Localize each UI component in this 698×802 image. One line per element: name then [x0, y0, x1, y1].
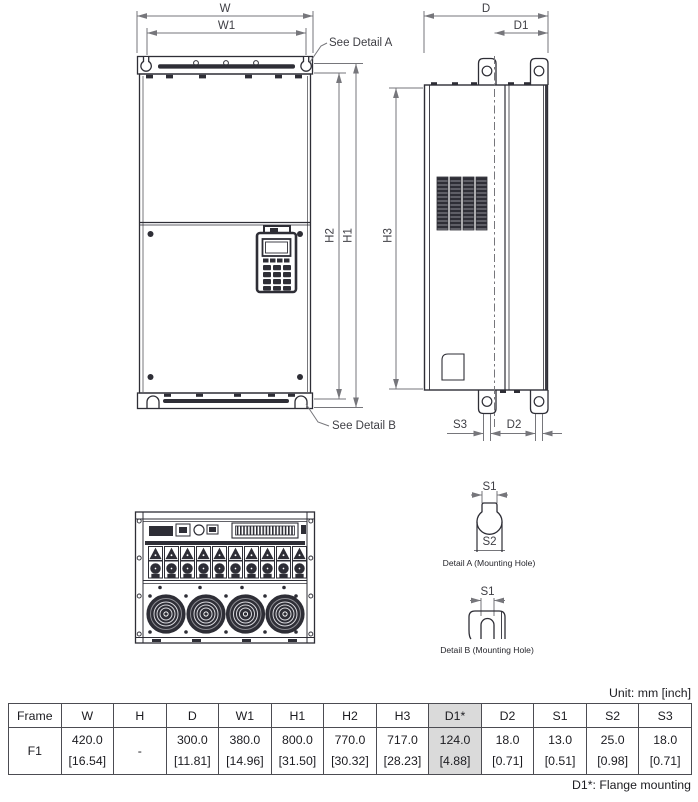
column-header: H2: [324, 704, 377, 728]
value-cell: 717.0[28.23]: [376, 728, 429, 775]
value-cell: 380.0[14.96]: [219, 728, 272, 775]
value-cell: 18.0[0.71]: [481, 728, 534, 775]
notch-slot-shape: [481, 619, 494, 640]
terminal-rail: [145, 541, 305, 545]
value-cell: 13.0[0.51]: [534, 728, 587, 775]
frame-cell: F1: [9, 728, 62, 775]
technical-drawing: [0, 0, 698, 686]
dim-label-h3: H3: [383, 218, 396, 254]
detail-b-drawing: [469, 598, 505, 639]
cooling-fans: [147, 595, 304, 633]
keyhole-right: [301, 57, 311, 71]
side-body: [425, 85, 548, 390]
bottom-notch-left: [147, 396, 159, 409]
dim-label-s3: S3: [446, 419, 474, 432]
column-header: S2: [586, 704, 639, 728]
keypad: [257, 226, 296, 292]
callout-see-detail-a: See Detail A: [329, 37, 392, 50]
side-view: [425, 56, 549, 427]
control-components: [149, 523, 306, 538]
table-head: FrameWHDW1H1H2H3D1*D2S1S2S3: [9, 704, 692, 728]
dim-label-w1: W1: [147, 20, 306, 33]
dim-label-d2: D2: [500, 419, 528, 432]
value-cell: -: [114, 728, 167, 775]
keyhole-left: [141, 57, 151, 71]
bottom-slot: [163, 399, 289, 403]
keyhole-shape: [477, 503, 502, 534]
table-body: F1420.0[16.54]-300.0[11.81]380.0[14.96]8…: [9, 728, 692, 775]
top-slot: [158, 64, 295, 68]
column-header: H: [114, 704, 167, 728]
dimensions-table: FrameWHDW1H1H2H3D1*D2S1S2S3 F1420.0[16.5…: [8, 703, 692, 775]
dim-label-s1-detail-a: S1: [477, 481, 502, 494]
column-header: W1: [219, 704, 272, 728]
value-cell: 770.0[30.32]: [324, 728, 377, 775]
dim-label-d1: D1: [494, 20, 548, 33]
notch-tab-shape: [469, 611, 505, 639]
value-cell: 18.0[0.71]: [639, 728, 692, 775]
bottom-notch-right: [295, 396, 307, 409]
dim-label-s2-detail-a: S2: [477, 536, 502, 549]
dimensions-table-container: FrameWHDW1H1H2H3D1*D2S1S2S3 F1420.0[16.5…: [8, 703, 692, 775]
value-cell: 800.0[31.50]: [271, 728, 324, 775]
side-top-tabs-marks: [431, 82, 530, 393]
value-cell: 124.0[4.88]: [429, 728, 482, 775]
column-header: H3: [376, 704, 429, 728]
value-cell: 420.0[16.54]: [61, 728, 114, 775]
value-cell: 25.0[0.98]: [586, 728, 639, 775]
value-cell: 300.0[11.81]: [166, 728, 219, 775]
vent-grille: [437, 177, 487, 230]
column-header: S1: [534, 704, 587, 728]
column-header: S3: [639, 704, 692, 728]
column-header: H1: [271, 704, 324, 728]
dim-label-h2: H2: [325, 218, 338, 254]
dim-label-h1: H1: [343, 218, 356, 254]
callout-see-detail-b: See Detail B: [332, 420, 396, 433]
column-header: D2: [481, 704, 534, 728]
terminal-strip: [149, 547, 307, 579]
side-cutout: [442, 354, 464, 380]
detail-b-caption: Detail B (Mounting Hole): [417, 645, 557, 655]
table-footnote: D1*: Flange mounting: [450, 778, 691, 792]
dimension-drawing-page: W W1 D D1 See Detail A See Detail B H2 H…: [0, 0, 698, 802]
column-header: D: [166, 704, 219, 728]
table-row: F1420.0[16.54]-300.0[11.81]380.0[14.96]8…: [9, 728, 692, 775]
dim-label-d: D: [424, 3, 548, 16]
column-header: Frame: [9, 704, 62, 728]
bottom-view: [136, 512, 315, 643]
front-view: [138, 57, 313, 409]
column-header: D1*: [429, 704, 482, 728]
dim-label-w: W: [137, 3, 313, 16]
column-header: W: [61, 704, 114, 728]
unit-note: Unit: mm [inch]: [450, 686, 691, 700]
detail-a-caption: Detail A (Mounting Hole): [419, 558, 559, 568]
dim-label-s1-detail-b: S1: [475, 586, 500, 599]
top-plate-tabs: [146, 75, 302, 79]
